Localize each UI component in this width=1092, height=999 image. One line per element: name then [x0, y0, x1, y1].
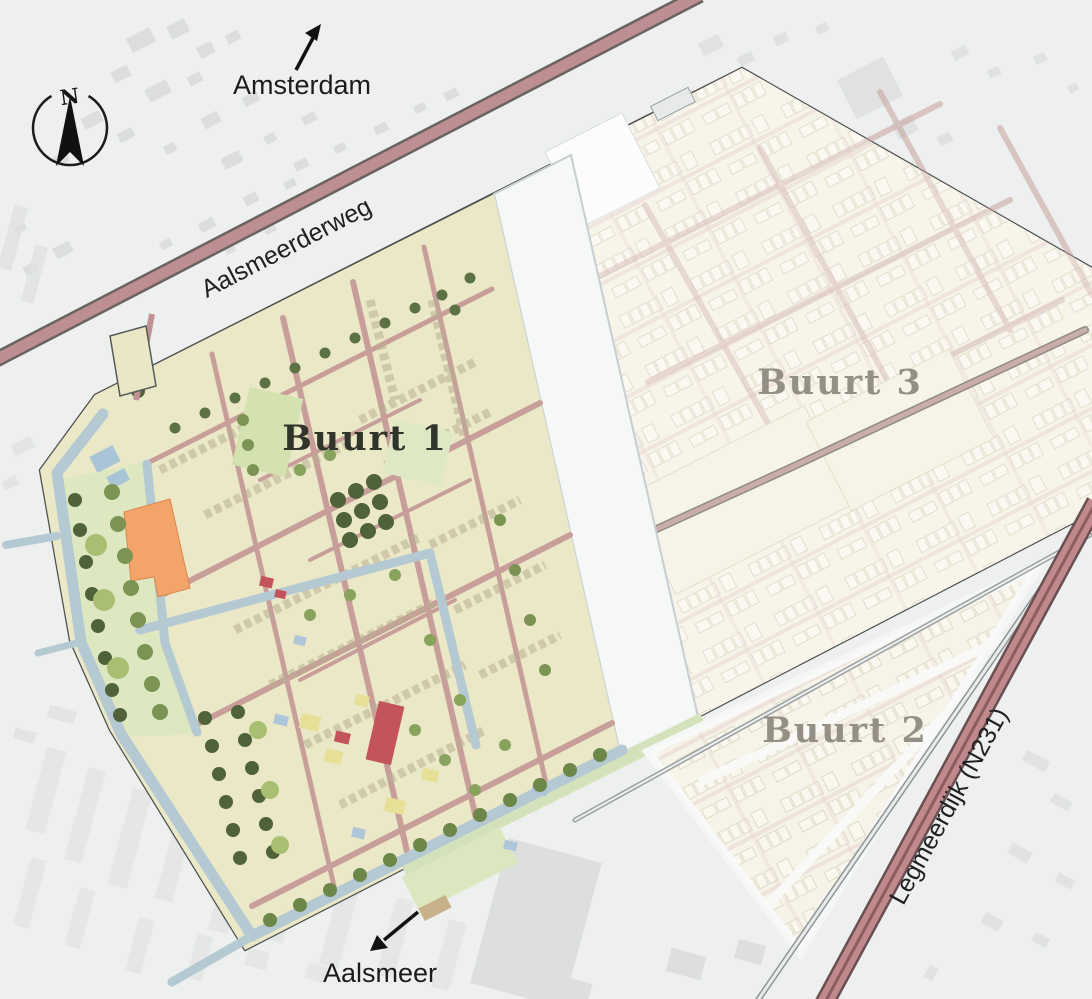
masterplan-map: Buurt 1 Buurt 3 Buurt 2 Aalsmeerderweg L…: [0, 0, 1092, 999]
amsterdam-label: Amsterdam: [233, 70, 371, 100]
map-canvas: Buurt 1 Buurt 3 Buurt 2 Aalsmeerderweg L…: [0, 0, 1092, 999]
buurt-2-label: Buurt 2: [762, 710, 928, 751]
aalsmeer-label: Aalsmeer: [323, 958, 437, 988]
buurt-3-label: Buurt 3: [757, 362, 923, 403]
buurt-1-label: Buurt 1: [282, 418, 448, 459]
compass-n-label: N: [58, 83, 80, 110]
